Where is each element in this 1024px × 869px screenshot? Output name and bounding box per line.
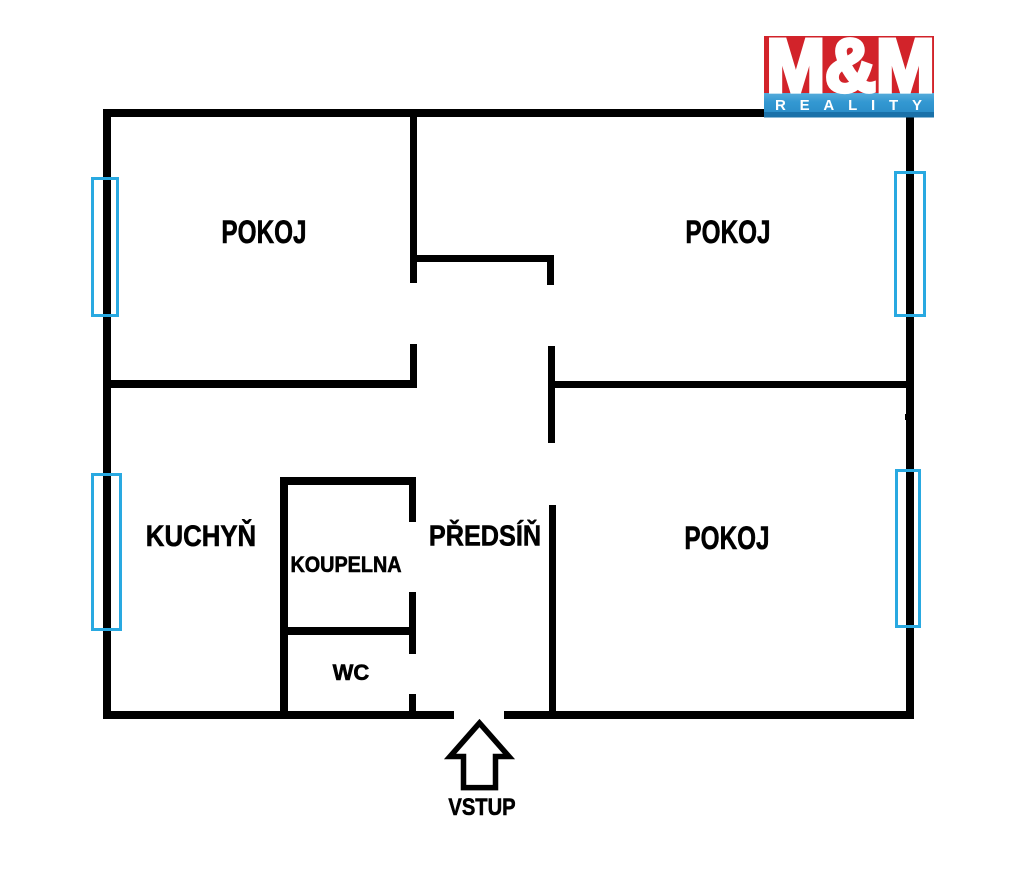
svg-text:REALITY: REALITY	[775, 97, 934, 114]
